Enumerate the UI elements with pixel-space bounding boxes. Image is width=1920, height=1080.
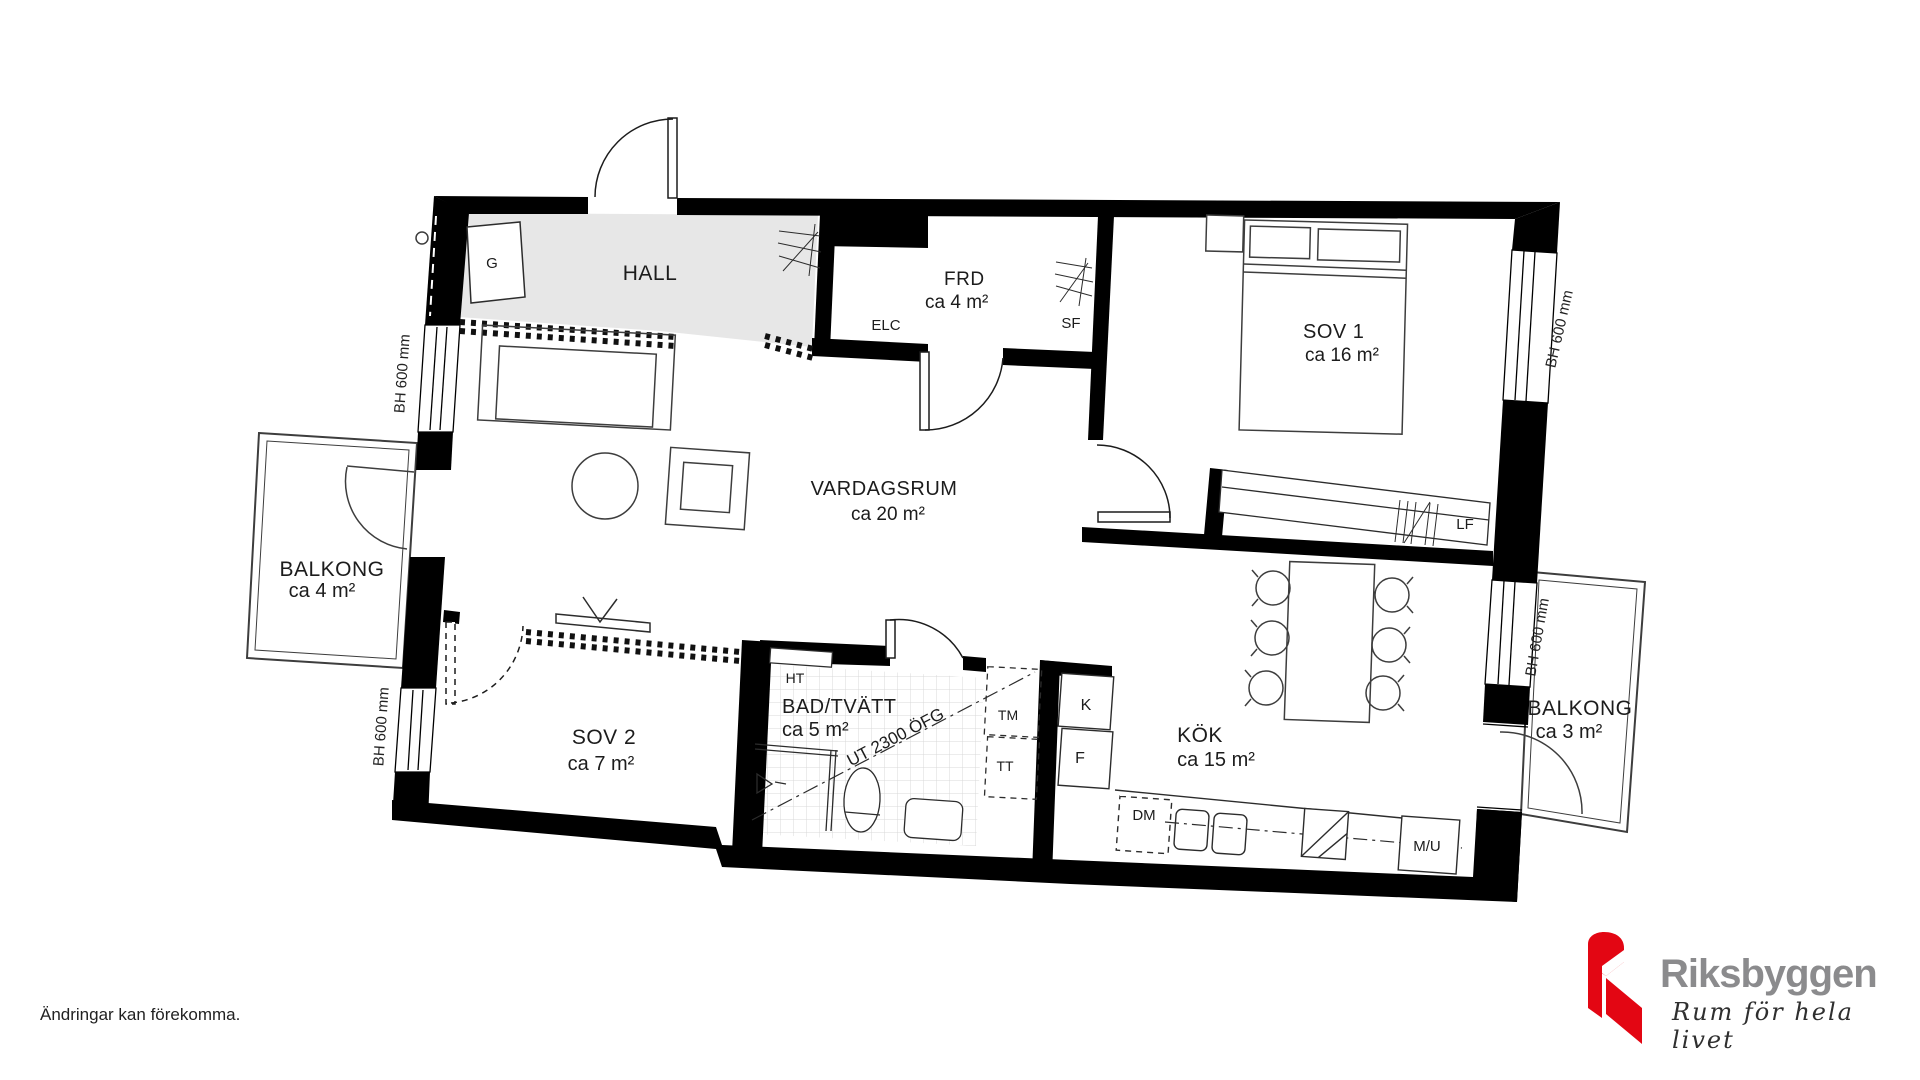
dining-table	[1284, 562, 1374, 723]
freezer-f	[1058, 728, 1113, 788]
room-label-sov2: SOV 2	[572, 726, 636, 749]
brand-tagline: Rum för hela livet	[1672, 998, 1896, 1054]
room-label-frd: FRD	[944, 269, 985, 290]
disclaimer-text: Ändringar kan förekomma.	[40, 1005, 240, 1025]
room-label-hall: HALL	[623, 262, 678, 285]
balcony-left	[247, 433, 417, 668]
sov1-closet-lf	[1219, 470, 1490, 546]
wardrobe-bands	[460, 322, 817, 661]
sink-bowl	[1212, 813, 1248, 855]
room-label-vardagsrum: VARDAGSRUM	[811, 478, 958, 500]
room-area-frd: ca 4 m²	[925, 292, 988, 313]
frd-fixtures	[1055, 258, 1093, 306]
stove	[1301, 809, 1348, 860]
label-f: F	[1075, 750, 1085, 767]
label-ht: HT	[786, 670, 805, 686]
armchair	[665, 447, 749, 529]
brand-name: Riksbyggen	[1660, 952, 1877, 997]
floor-plan-drawing: HALL FRD ca 4 m² SOV 1 ca 16 m² VARDAGSR…	[0, 0, 1920, 1080]
room-label-kok: KÖK	[1177, 724, 1223, 747]
counter-edge	[1115, 790, 1402, 818]
entry-door-leaf	[668, 118, 677, 198]
riksbyggen-logo-icon	[1586, 932, 1648, 1044]
room-area-vardagsrum: ca 20 m²	[851, 504, 925, 525]
label-sf: SF	[1061, 315, 1080, 332]
room-area-balkong-right: ca 3 m²	[1536, 721, 1603, 743]
sink	[904, 798, 964, 841]
bedside-table	[1206, 215, 1244, 252]
room-area-sov2: ca 7 m²	[568, 753, 635, 775]
label-g: G	[486, 255, 498, 272]
room-area-sov1: ca 16 m²	[1305, 345, 1379, 366]
label-k: K	[1081, 697, 1092, 714]
label-tt: TT	[996, 758, 1014, 774]
dining-set	[1245, 562, 1413, 723]
window-height-label: BH 600 mm	[391, 334, 413, 414]
room-area-balkong-left: ca 4 m²	[289, 580, 356, 602]
label-lf: LF	[1456, 516, 1474, 533]
column-symbol	[416, 232, 428, 244]
label-tm: TM	[998, 707, 1018, 723]
tm-tt-appliances	[984, 667, 1041, 800]
label-dm: DM	[1132, 807, 1155, 824]
room-label-sov1: SOV 1	[1303, 321, 1364, 343]
label-elc: ELC	[871, 317, 900, 334]
room-area-bad: ca 5 m²	[782, 719, 849, 741]
sink-bowl	[1174, 809, 1210, 851]
round-table	[572, 453, 638, 519]
entry-door-arc	[595, 119, 673, 197]
window-height-label: BH 600 mm	[370, 687, 392, 767]
room-label-balkong-right: BALKONG	[1527, 697, 1632, 720]
floor-plan-page: HALL FRD ca 4 m² SOV 1 ca 16 m² VARDAGSR…	[0, 0, 1920, 1080]
room-label-balkong-left: BALKONG	[279, 558, 384, 581]
sofa	[478, 325, 676, 430]
sov2-tv-marker	[556, 597, 650, 632]
label-mu: M/U	[1413, 838, 1441, 855]
room-area-kok: ca 15 m²	[1177, 749, 1255, 771]
livingroom-furniture	[478, 325, 750, 530]
riksbyggen-logo: Riksbyggen Rum för hela livet	[1586, 928, 1896, 1048]
room-label-bad: BAD/TVÄTT	[782, 696, 897, 718]
pillow	[1250, 226, 1311, 259]
pillow	[1318, 229, 1401, 262]
dishwasher-dm	[1116, 796, 1172, 853]
